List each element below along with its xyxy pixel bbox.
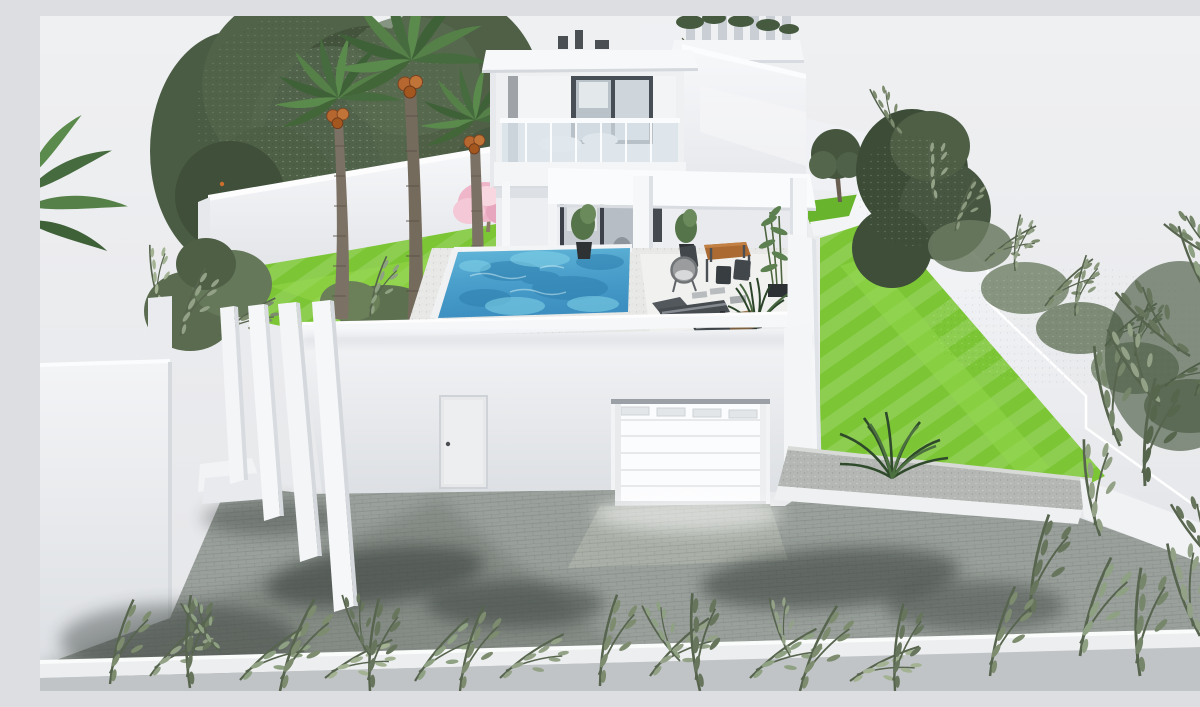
entry-door xyxy=(440,396,487,488)
balcony-glass-railing xyxy=(500,118,680,167)
door-handle xyxy=(446,442,450,446)
upper-floor xyxy=(482,50,698,189)
garage xyxy=(611,399,770,507)
corner-post xyxy=(502,181,510,251)
garage-light-glow xyxy=(593,496,783,532)
render-canvas xyxy=(40,16,1200,691)
front-wall xyxy=(302,322,812,507)
architectural-render xyxy=(40,16,1200,691)
swimming-pool xyxy=(430,244,632,320)
roof-slab xyxy=(482,50,698,70)
